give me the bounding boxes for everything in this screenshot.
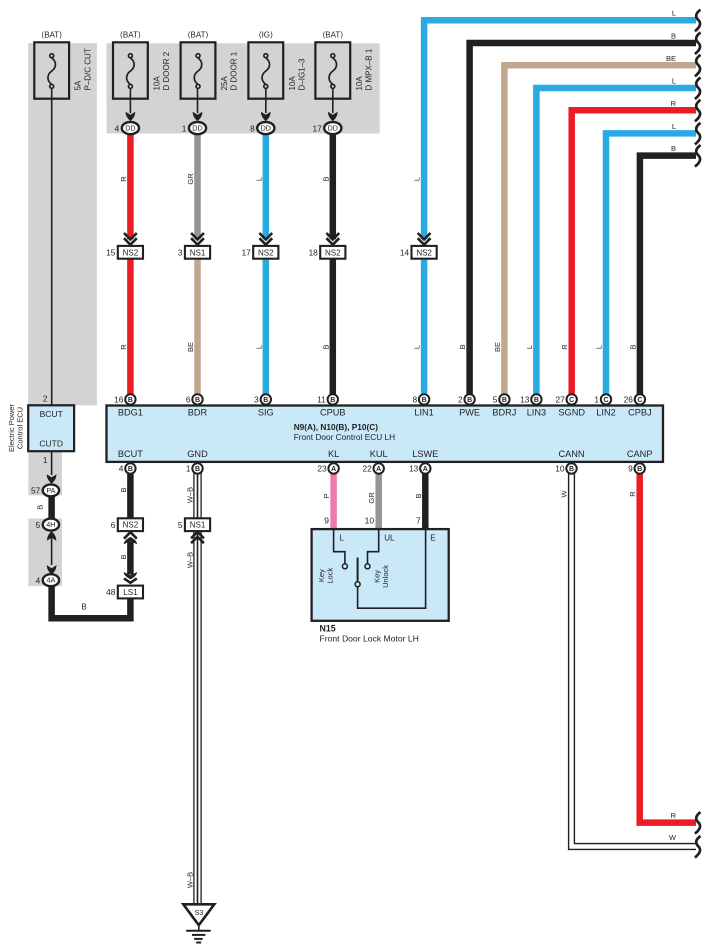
svg-text:BCUT: BCUT bbox=[40, 409, 63, 419]
svg-text:A: A bbox=[376, 466, 381, 473]
svg-text:B: B bbox=[263, 397, 268, 404]
svg-text:10: 10 bbox=[555, 464, 565, 474]
svg-text:LSWE: LSWE bbox=[412, 449, 438, 459]
svg-text:BDRJ: BDRJ bbox=[492, 408, 516, 418]
svg-text:W–B: W–B bbox=[186, 552, 195, 568]
svg-text:KUL: KUL bbox=[370, 449, 388, 459]
svg-text:B: B bbox=[671, 144, 676, 153]
svg-text:⟨BAT⟩: ⟨BAT⟩ bbox=[120, 31, 141, 40]
svg-text:NS2: NS2 bbox=[123, 521, 139, 530]
svg-text:R: R bbox=[671, 99, 677, 108]
svg-text:R: R bbox=[671, 811, 677, 820]
svg-text:1: 1 bbox=[186, 464, 191, 474]
svg-text:B: B bbox=[458, 344, 467, 349]
svg-text:BDR: BDR bbox=[188, 408, 208, 418]
svg-text:DD: DD bbox=[261, 124, 271, 133]
svg-text:3: 3 bbox=[178, 248, 183, 258]
svg-text:W–B: W–B bbox=[186, 872, 195, 888]
svg-text:P–D/C CUT: P–D/C CUT bbox=[83, 48, 92, 90]
svg-text:D DOOR 2: D DOOR 2 bbox=[162, 51, 171, 90]
svg-text:⟨IG⟩: ⟨IG⟩ bbox=[258, 31, 273, 40]
svg-text:B: B bbox=[467, 397, 472, 404]
svg-text:B: B bbox=[628, 344, 637, 349]
svg-text:D MPX–B 1: D MPX–B 1 bbox=[364, 48, 373, 90]
svg-text:6: 6 bbox=[186, 395, 191, 405]
svg-text:L: L bbox=[413, 345, 422, 349]
svg-text:KL: KL bbox=[328, 449, 339, 459]
svg-text:11: 11 bbox=[317, 395, 326, 405]
svg-text:2: 2 bbox=[43, 394, 48, 404]
svg-text:⟨BAT⟩: ⟨BAT⟩ bbox=[187, 31, 208, 40]
svg-text:N9(A), N10(B), P10(C): N9(A), N10(B), P10(C) bbox=[294, 422, 379, 432]
svg-text:10A: 10A bbox=[288, 76, 297, 91]
svg-text:NS2: NS2 bbox=[325, 248, 341, 257]
svg-text:R: R bbox=[560, 344, 569, 350]
svg-text:PA: PA bbox=[46, 486, 55, 495]
svg-text:23: 23 bbox=[317, 464, 327, 474]
svg-text:L: L bbox=[254, 177, 263, 181]
svg-text:7: 7 bbox=[416, 516, 421, 526]
svg-text:Unlock: Unlock bbox=[381, 565, 390, 588]
svg-text:4A: 4A bbox=[47, 576, 56, 585]
svg-text:4: 4 bbox=[119, 464, 124, 474]
svg-text:16: 16 bbox=[114, 395, 124, 405]
svg-text:22: 22 bbox=[362, 464, 372, 474]
svg-text:GR: GR bbox=[367, 492, 376, 504]
svg-text:NS1: NS1 bbox=[190, 521, 206, 530]
svg-text:18: 18 bbox=[309, 248, 319, 258]
svg-text:B: B bbox=[321, 176, 330, 181]
svg-text:P: P bbox=[322, 493, 331, 498]
svg-text:BE: BE bbox=[186, 342, 195, 352]
svg-text:⟨BAT⟩: ⟨BAT⟩ bbox=[322, 31, 343, 40]
svg-text:C: C bbox=[637, 397, 642, 404]
svg-text:GND: GND bbox=[187, 449, 208, 459]
svg-text:L: L bbox=[672, 9, 676, 18]
svg-text:LIN3: LIN3 bbox=[527, 408, 546, 418]
svg-text:B: B bbox=[534, 397, 539, 404]
svg-text:NS2: NS2 bbox=[258, 248, 274, 257]
svg-text:10A: 10A bbox=[152, 76, 161, 91]
svg-text:B: B bbox=[414, 493, 423, 498]
svg-text:5A: 5A bbox=[74, 80, 83, 90]
svg-text:W: W bbox=[669, 833, 677, 842]
svg-text:9: 9 bbox=[628, 464, 633, 474]
svg-text:B: B bbox=[422, 397, 427, 404]
svg-text:4: 4 bbox=[115, 123, 120, 133]
svg-text:C: C bbox=[603, 397, 608, 404]
svg-text:B: B bbox=[321, 344, 330, 349]
svg-text:CPBJ: CPBJ bbox=[628, 408, 652, 418]
svg-text:R: R bbox=[628, 491, 637, 497]
svg-text:2: 2 bbox=[458, 395, 463, 405]
svg-text:B: B bbox=[671, 32, 676, 41]
svg-text:6: 6 bbox=[111, 520, 116, 530]
svg-text:CANN: CANN bbox=[558, 449, 584, 459]
svg-text:L: L bbox=[340, 534, 345, 543]
svg-text:W: W bbox=[560, 490, 569, 498]
svg-text:13: 13 bbox=[520, 395, 530, 405]
svg-text:5: 5 bbox=[178, 520, 183, 530]
svg-text:B: B bbox=[128, 466, 133, 473]
svg-text:9: 9 bbox=[324, 516, 329, 526]
svg-text:PWE: PWE bbox=[459, 408, 480, 418]
svg-text:B: B bbox=[330, 397, 335, 404]
svg-text:8: 8 bbox=[412, 395, 417, 405]
svg-text:17: 17 bbox=[312, 123, 322, 133]
svg-text:BCUT: BCUT bbox=[118, 449, 143, 459]
svg-text:S3: S3 bbox=[195, 908, 204, 917]
svg-text:L: L bbox=[525, 345, 534, 349]
svg-text:Control ECU: Control ECU bbox=[16, 407, 25, 449]
svg-text:B: B bbox=[128, 397, 133, 404]
svg-text:B: B bbox=[569, 466, 574, 473]
svg-text:B: B bbox=[35, 505, 44, 510]
svg-text:B: B bbox=[119, 487, 128, 492]
svg-text:N15: N15 bbox=[320, 624, 336, 634]
svg-text:57: 57 bbox=[31, 486, 41, 496]
svg-text:UL: UL bbox=[384, 534, 395, 543]
svg-text:BDG1: BDG1 bbox=[118, 408, 143, 418]
svg-text:A: A bbox=[423, 466, 428, 473]
svg-text:4: 4 bbox=[36, 575, 41, 585]
svg-text:Front Door Control ECU LH: Front Door Control ECU LH bbox=[294, 432, 395, 442]
svg-text:Lock: Lock bbox=[325, 568, 334, 584]
svg-text:48: 48 bbox=[106, 587, 116, 597]
svg-text:DD: DD bbox=[192, 124, 202, 133]
svg-text:D–IG1–3: D–IG1–3 bbox=[297, 58, 306, 91]
svg-text:BE: BE bbox=[493, 342, 502, 352]
svg-text:CUTD: CUTD bbox=[39, 439, 63, 449]
svg-text:SIG: SIG bbox=[258, 408, 274, 418]
svg-text:R: R bbox=[119, 176, 128, 182]
svg-text:B: B bbox=[119, 554, 128, 559]
svg-text:Front Door Lock Motor LH: Front Door Lock Motor LH bbox=[320, 633, 419, 643]
svg-text:13: 13 bbox=[409, 464, 419, 474]
svg-text:NS1: NS1 bbox=[190, 248, 206, 257]
svg-text:15: 15 bbox=[106, 248, 116, 258]
svg-text:1: 1 bbox=[43, 455, 48, 465]
svg-text:R: R bbox=[119, 344, 128, 350]
svg-text:E: E bbox=[430, 534, 435, 543]
svg-text:L: L bbox=[672, 77, 676, 86]
svg-text:L: L bbox=[595, 345, 604, 349]
svg-text:B: B bbox=[81, 603, 86, 612]
svg-text:3: 3 bbox=[254, 395, 259, 405]
svg-text:NS2: NS2 bbox=[416, 248, 432, 257]
svg-text:14: 14 bbox=[400, 248, 410, 258]
svg-text:B: B bbox=[195, 466, 200, 473]
svg-text:A: A bbox=[331, 466, 336, 473]
svg-text:LIN2: LIN2 bbox=[596, 408, 615, 418]
svg-text:10: 10 bbox=[365, 516, 375, 526]
svg-text:D DOOR 1: D DOOR 1 bbox=[230, 51, 239, 90]
svg-text:CANP: CANP bbox=[627, 449, 653, 459]
svg-text:LIN1: LIN1 bbox=[414, 408, 433, 418]
svg-text:C: C bbox=[569, 397, 574, 404]
svg-text:B: B bbox=[502, 397, 507, 404]
svg-text:1: 1 bbox=[182, 123, 187, 133]
svg-text:BE: BE bbox=[666, 54, 676, 63]
svg-text:DD: DD bbox=[125, 124, 135, 133]
svg-text:L: L bbox=[413, 177, 422, 181]
svg-text:DD: DD bbox=[328, 124, 338, 133]
svg-text:⟨BAT⟩: ⟨BAT⟩ bbox=[41, 31, 62, 40]
svg-text:1: 1 bbox=[594, 395, 599, 405]
svg-text:B: B bbox=[637, 466, 642, 473]
svg-text:25A: 25A bbox=[220, 76, 229, 91]
svg-text:LS1: LS1 bbox=[123, 588, 138, 597]
svg-text:27: 27 bbox=[555, 395, 565, 405]
svg-text:SGND: SGND bbox=[558, 408, 585, 418]
svg-text:5: 5 bbox=[493, 395, 498, 405]
svg-text:10A: 10A bbox=[355, 76, 364, 91]
svg-text:GR: GR bbox=[186, 173, 195, 185]
svg-text:17: 17 bbox=[242, 248, 252, 258]
svg-text:CPUB: CPUB bbox=[320, 408, 346, 418]
svg-text:26: 26 bbox=[624, 395, 634, 405]
svg-text:L: L bbox=[254, 345, 263, 349]
svg-text:NS2: NS2 bbox=[123, 248, 139, 257]
svg-text:8: 8 bbox=[250, 123, 255, 133]
svg-text:4H: 4H bbox=[46, 520, 55, 529]
svg-text:5: 5 bbox=[36, 520, 41, 530]
svg-text:B: B bbox=[195, 397, 200, 404]
svg-text:L: L bbox=[672, 122, 676, 131]
svg-text:W–B: W–B bbox=[186, 487, 195, 503]
